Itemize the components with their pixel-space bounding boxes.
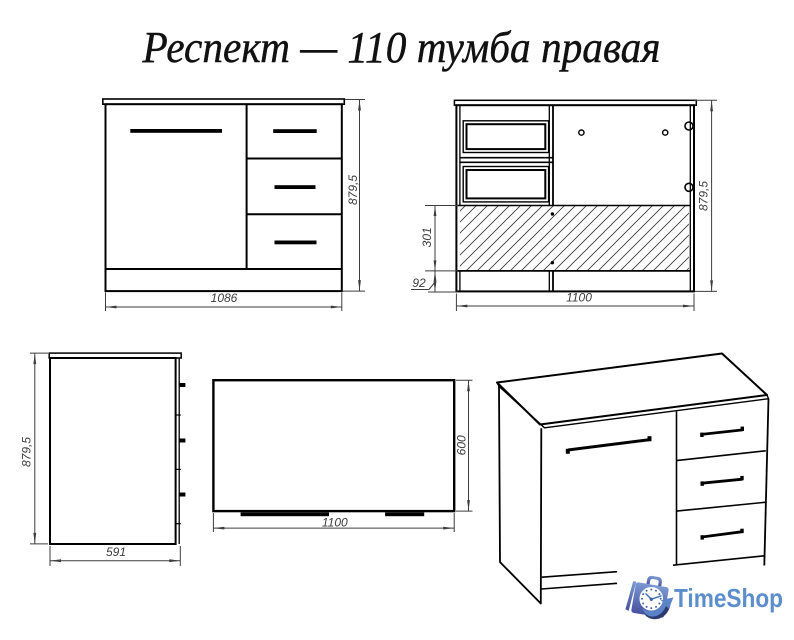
svg-text:TimeShop: TimeShop (674, 583, 783, 613)
svg-text:879,5: 879,5 (697, 181, 711, 211)
svg-text:879,5: 879,5 (20, 437, 34, 467)
svg-text:Респект — 110 тумба правая: Респект — 110 тумба правая (142, 23, 661, 72)
svg-text:92: 92 (412, 276, 426, 290)
svg-text:1100: 1100 (322, 516, 348, 530)
svg-text:1100: 1100 (566, 291, 592, 305)
svg-text:600: 600 (454, 435, 468, 455)
svg-text:1086: 1086 (211, 291, 238, 305)
svg-text:591: 591 (106, 545, 126, 559)
svg-text:879,5: 879,5 (346, 175, 360, 205)
svg-text:301: 301 (420, 227, 434, 247)
